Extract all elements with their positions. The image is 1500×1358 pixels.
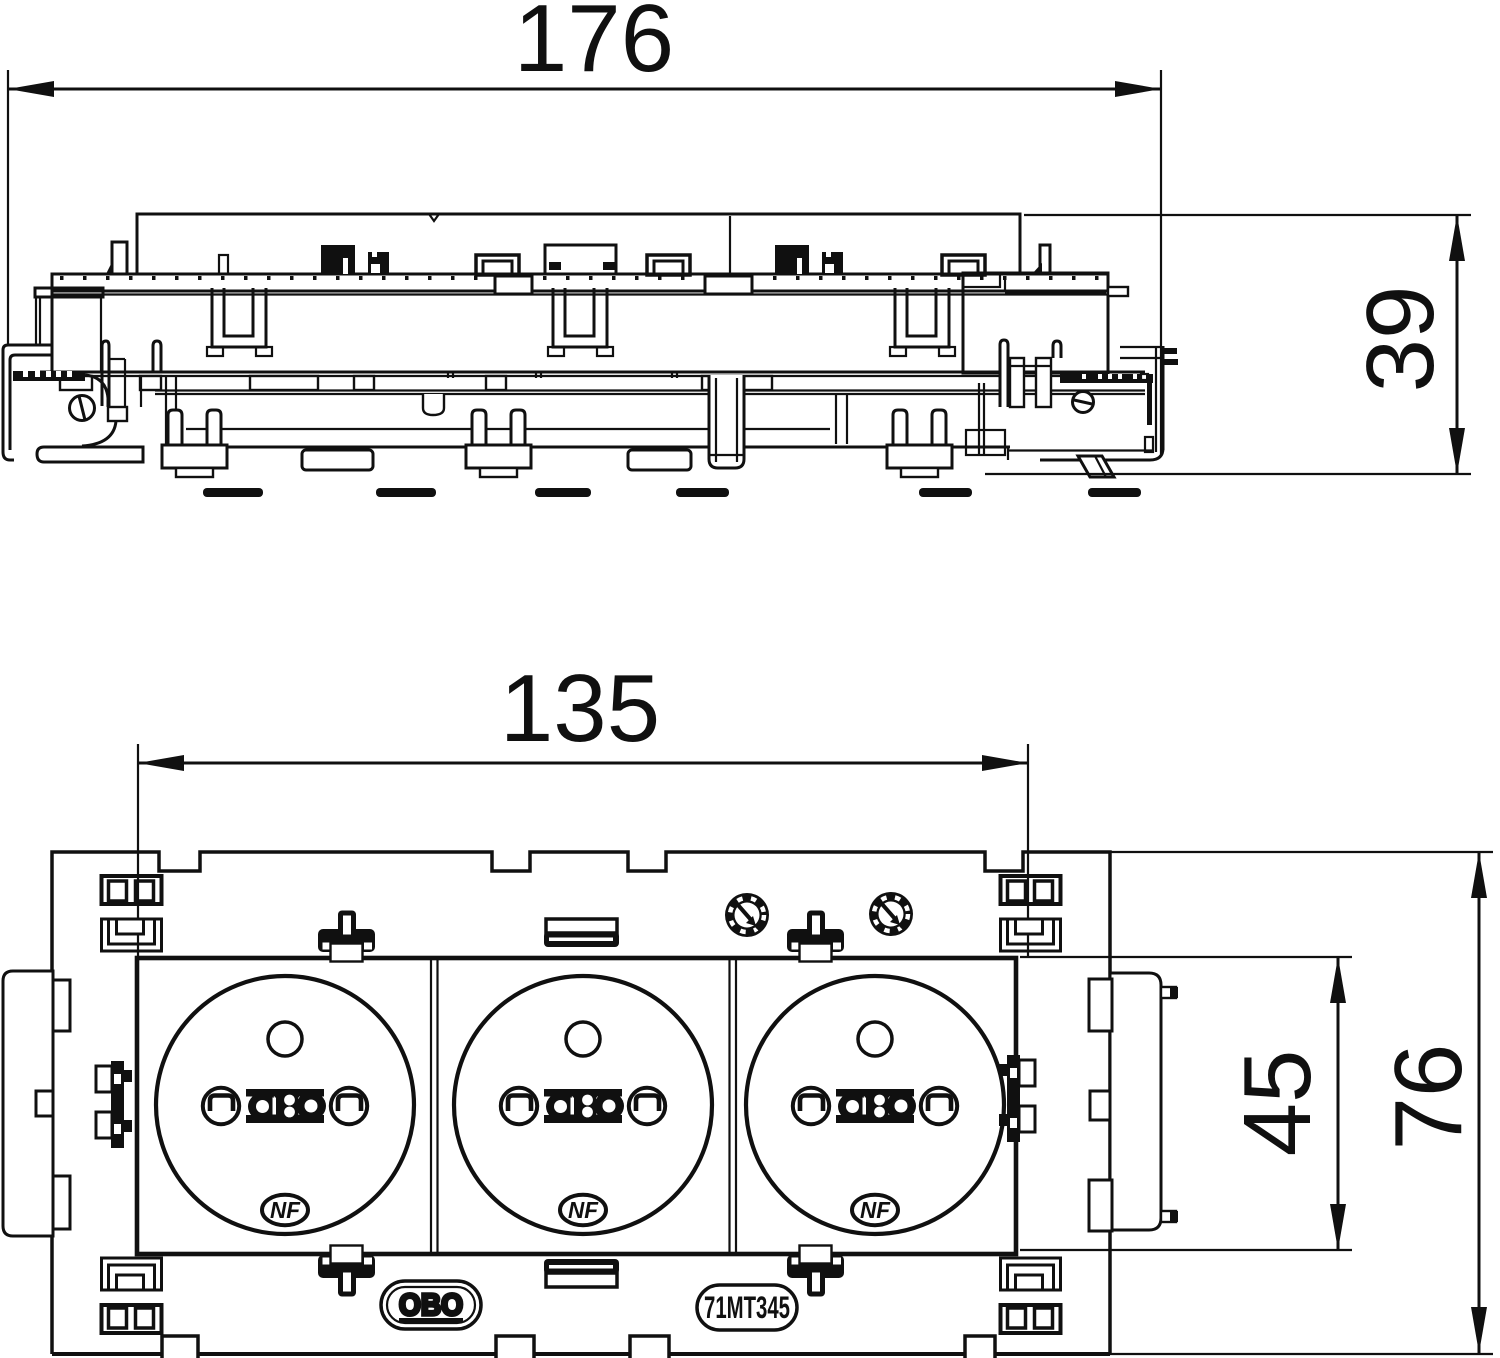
svg-text:71MT345: 71MT345 [704, 1289, 790, 1325]
svg-text:39: 39 [1347, 286, 1454, 393]
svg-text:OBO: OBO [399, 1287, 463, 1322]
svg-text:76: 76 [1375, 1044, 1482, 1151]
svg-text:135: 135 [500, 655, 660, 762]
svg-text:176: 176 [514, 0, 674, 92]
svg-text:45: 45 [1224, 1050, 1331, 1157]
